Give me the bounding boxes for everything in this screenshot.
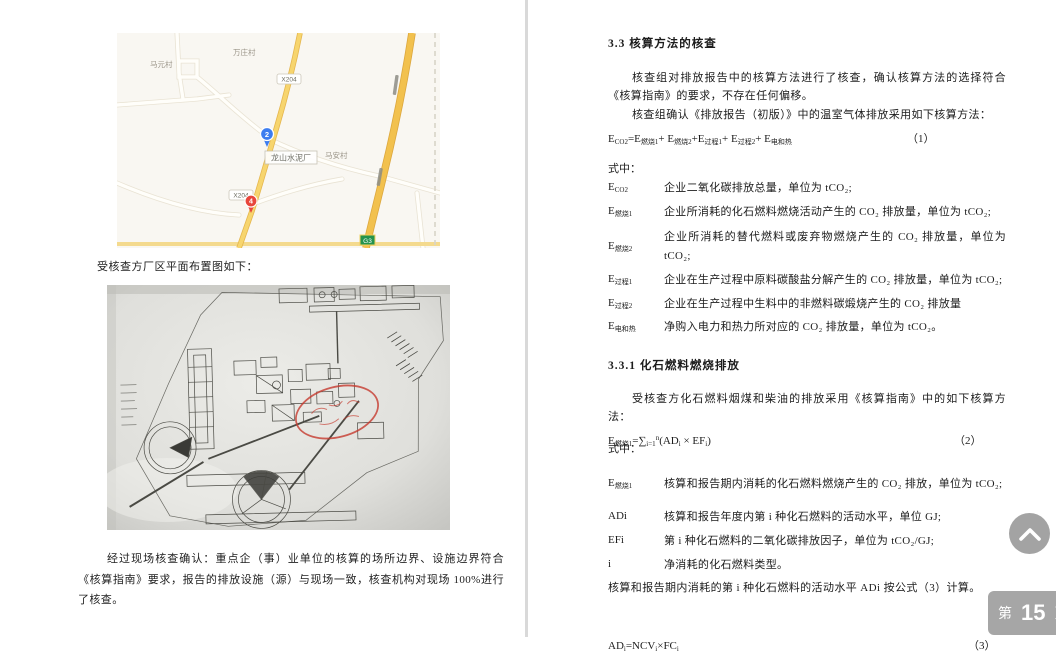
formula-3: ADi=NCVi×FCi （3）: [608, 638, 1006, 656]
svg-text:龙山水泥厂: 龙山水泥厂: [271, 153, 311, 163]
site-verification-paragraph: 经过现场核查确认：重点企（事）业单位的核算的场所边界、设施边界符合《核算指南》要…: [78, 549, 504, 611]
term-symbol: E过程2: [608, 295, 664, 313]
paragraph-fossil-method: 受核查方化石燃料烟煤和柴油的排放采用《核算指南》中的如下核算方法：: [608, 391, 1006, 426]
document-page-right: 3.3 核算方法的核查 核查组对排放报告中的核算方法进行了核查，确认核算方法的选…: [528, 0, 1056, 637]
term-definition: 企业所消耗的替代燃料或废弃物燃烧产生的 CO₂ 排放量，单位为 tCO₂;: [664, 228, 1006, 266]
term-symbol: E电和热: [608, 318, 664, 336]
village-label-left: 马元村: [150, 59, 173, 69]
page-label-prefix: 第: [998, 603, 1012, 623]
map-graphic: 万庄村 马元村 马安村 X204 X204 龙山水泥厂 2: [117, 33, 440, 248]
term-definition: 企业在生产过程中原料碳酸盐分解产生的 CO₂ 排放量，单位为 tCO₂;: [664, 271, 1006, 290]
term-symbol: EFi: [608, 532, 664, 550]
term-definition: 核算和报告年度内第 i 种化石燃料的活动水平，单位 GJ;: [664, 508, 1006, 527]
document-page-left: 万庄村 马元村 马安村 X204 X204 龙山水泥厂 2: [0, 0, 525, 637]
svg-text:2: 2: [265, 130, 269, 139]
term-symbol: ECO2: [608, 179, 664, 197]
term-symbol: E燃烧2: [608, 238, 664, 256]
term-row: E电和热 净购入电力和热力所对应的 CO₂ 排放量，单位为 tCO₂。: [608, 318, 1006, 337]
term-symbol: E燃烧1: [608, 203, 664, 221]
term-symbol: ADi: [608, 508, 664, 526]
svg-text:X204: X204: [281, 77, 297, 84]
paragraph-method-confirm: 核查组确认《排放报告（初版）》中的温室气体排放采用如下核算方法：: [608, 107, 1006, 125]
factory-plan-image: [107, 285, 450, 530]
paragraph-method-check: 核查组对排放报告中的核算方法进行了核查，确认核算方法的选择符合《核算指南》的要求…: [608, 70, 1006, 105]
term-row: E过程1 企业在生产过程中原料碳酸盐分解产生的 CO₂ 排放量，单位为 tCO₂…: [608, 271, 1006, 290]
page-gap-divider: [525, 0, 528, 637]
formula-1-number: （1）: [907, 131, 935, 149]
where-label-1: 式中：: [608, 161, 1006, 179]
chevron-up-icon: [1017, 525, 1043, 543]
term-definition: 企业二氧化碳排放总量，单位为 tCO₂;: [664, 179, 1006, 198]
section-heading-3-3-1: 3.3.1 化石燃料燃烧排放: [608, 358, 1006, 376]
term-symbol: E过程1: [608, 271, 664, 289]
term-row: E燃烧1 核算和报告期内消耗的化石燃料燃烧产生的 CO₂ 排放，单位为 tCO₂…: [608, 464, 1006, 504]
term-row: ADi 核算和报告年度内第 i 种化石燃料的活动水平，单位 GJ;: [608, 508, 1006, 527]
expressway-shield-g3: G3: [360, 235, 375, 245]
term-row: E燃烧1 企业所消耗的化石燃料燃烧活动产生的 CO₂ 排放量，单位为 tCO₂;: [608, 203, 1006, 222]
village-label-right: 马安村: [325, 150, 348, 160]
term-row: E过程2 企业在生产过程中生料中的非燃料碳煅烧产生的 CO₂ 排放量: [608, 295, 1006, 314]
document-viewer: { "viewer": { "page_label_prefix": "第", …: [0, 0, 1056, 637]
village-label-top: 万庄村: [233, 47, 256, 57]
where-label-2: 式中：: [608, 441, 1006, 459]
term-definition: 第 i 种化石燃料的二氧化碳排放因子，单位为 tCO₂/GJ;: [664, 532, 1006, 551]
svg-text:G3: G3: [363, 238, 372, 245]
scroll-to-top-button[interactable]: [1009, 513, 1050, 554]
term-definition: 净消耗的化石燃料类型。: [664, 556, 1006, 575]
plant-location-map-image: 万庄村 马元村 马安村 X204 X204 龙山水泥厂 2: [117, 33, 440, 248]
term-row: ECO2 企业二氧化碳排放总量，单位为 tCO₂;: [608, 179, 1006, 198]
term-definition: 净购入电力和热力所对应的 CO₂ 排放量，单位为 tCO₂。: [664, 318, 1006, 337]
term-row: EFi 第 i 种化石燃料的二氧化碳排放因子，单位为 tCO₂/GJ;: [608, 532, 1006, 551]
page-number: 15: [1021, 600, 1045, 626]
term-definition: 企业在生产过程中生料中的非燃料碳煅烧产生的 CO₂ 排放量: [664, 295, 1006, 314]
term-symbol: E燃烧1: [608, 475, 664, 493]
term-symbol: i: [608, 556, 664, 574]
formula-1-expression: ECO2=E燃烧1+ E燃烧2+E过程1+ E过程2+ E电和热: [608, 133, 792, 145]
term-definition: 企业所消耗的化石燃料燃烧活动产生的 CO₂ 排放量，单位为 tCO₂;: [664, 203, 1006, 222]
term-definition: 核算和报告期内消耗的化石燃料燃烧产生的 CO₂ 排放，单位为 tCO₂;: [664, 475, 1006, 494]
plan-caption: 受核查方厂区平面布置图如下：: [97, 258, 258, 274]
page-number-badge: 第 15 页: [988, 591, 1056, 635]
svg-text:4: 4: [249, 199, 253, 206]
term-row: i 净消耗的化石燃料类型。: [608, 556, 1006, 575]
paragraph-adi-formula: 核算和报告期内消耗的第 i 种化石燃料的活动水平 ADi 按公式（3）计算。: [608, 580, 1006, 598]
section-heading-3-3: 3.3 核算方法的核查: [608, 36, 1006, 54]
formula-3-number: （3）: [968, 638, 996, 656]
formula-3-expression: ADi=NCVi×FCi: [608, 640, 679, 652]
right-page-content: 3.3 核算方法的核查 核查组对排放报告中的核算方法进行了核查，确认核算方法的选…: [608, 0, 1006, 637]
term-row: E燃烧2 企业所消耗的替代燃料或废弃物燃烧产生的 CO₂ 排放量，单位为 tCO…: [608, 227, 1006, 267]
plant-name-label: 龙山水泥厂: [265, 151, 317, 164]
road-shield-x204-top: X204: [277, 74, 301, 84]
formula-1: ECO2=E燃烧1+ E燃烧2+E过程1+ E过程2+ E电和热 （1）: [608, 131, 1006, 149]
factory-plan-graphic: [107, 285, 450, 530]
